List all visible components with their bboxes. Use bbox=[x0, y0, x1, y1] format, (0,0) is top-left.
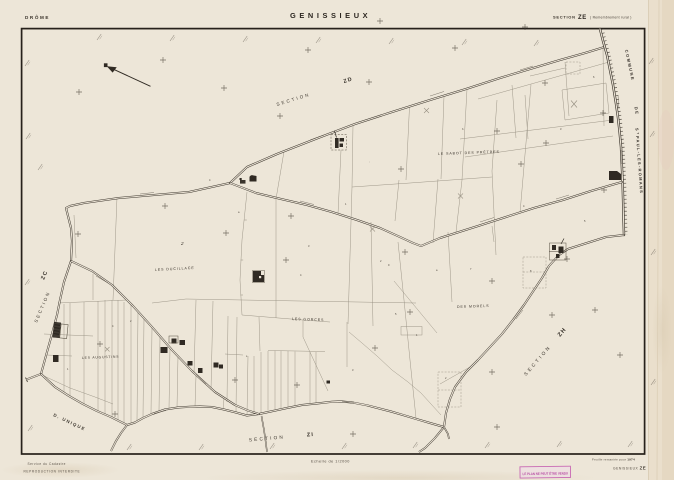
svg-text:GENISSIEUX ZE: GENISSIEUX ZE bbox=[613, 466, 646, 471]
svg-text:GENISSIEUX: GENISSIEUX bbox=[290, 11, 371, 20]
svg-text:SECTION: SECTION bbox=[553, 15, 576, 20]
svg-text:Echelle de 1/2000: Echelle de 1/2000 bbox=[311, 459, 350, 463]
svg-text:ZE: ZE bbox=[578, 15, 587, 21]
svg-text:Feuille remaniée pour 1974: Feuille remaniée pour 1974 bbox=[592, 458, 635, 462]
svg-text:ZI: ZI bbox=[307, 432, 315, 439]
svg-text:2: 2 bbox=[180, 241, 184, 246]
svg-text:REPRODUCTION INTERDITE: REPRODUCTION INTERDITE bbox=[24, 469, 81, 473]
svg-text:LE PLAN NE PEUT ÊTRE VENDU: LE PLAN NE PEUT ÊTRE VENDU bbox=[522, 471, 568, 477]
svg-text:DRÔME: DRÔME bbox=[25, 13, 50, 20]
svg-text:( Remembrement rural ): ( Remembrement rural ) bbox=[590, 15, 632, 19]
svg-text:Service du Cadastre: Service du Cadastre bbox=[28, 462, 66, 466]
